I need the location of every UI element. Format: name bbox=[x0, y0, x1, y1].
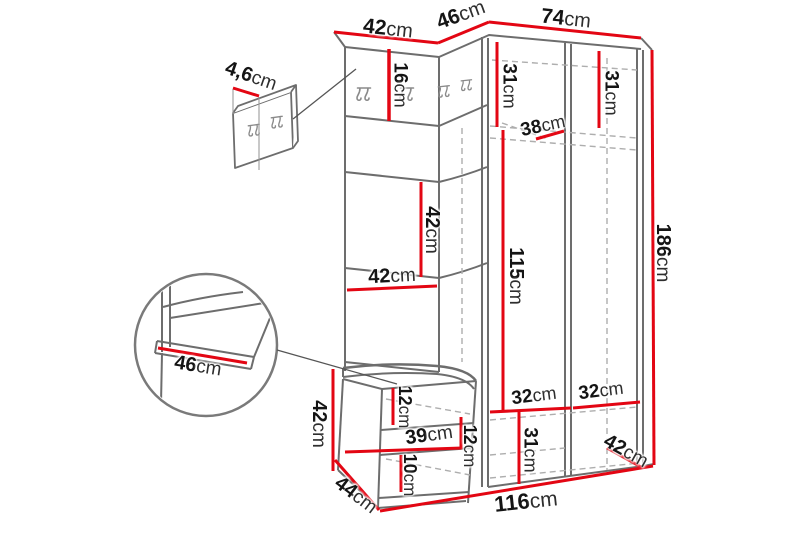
detail-circle bbox=[135, 274, 277, 416]
furniture-line-art bbox=[0, 0, 800, 533]
hook-panel-detail bbox=[233, 85, 298, 168]
dimension-diagram: 4,6cm 42cm 46cm 74cm 16cm 31cm 31cm 38cm… bbox=[0, 0, 800, 533]
main-unit-outline bbox=[334, 32, 654, 508]
dashed-hidden-lines bbox=[386, 58, 640, 478]
coat-hooks bbox=[357, 80, 473, 100]
dimension-lines-red bbox=[158, 22, 654, 511]
